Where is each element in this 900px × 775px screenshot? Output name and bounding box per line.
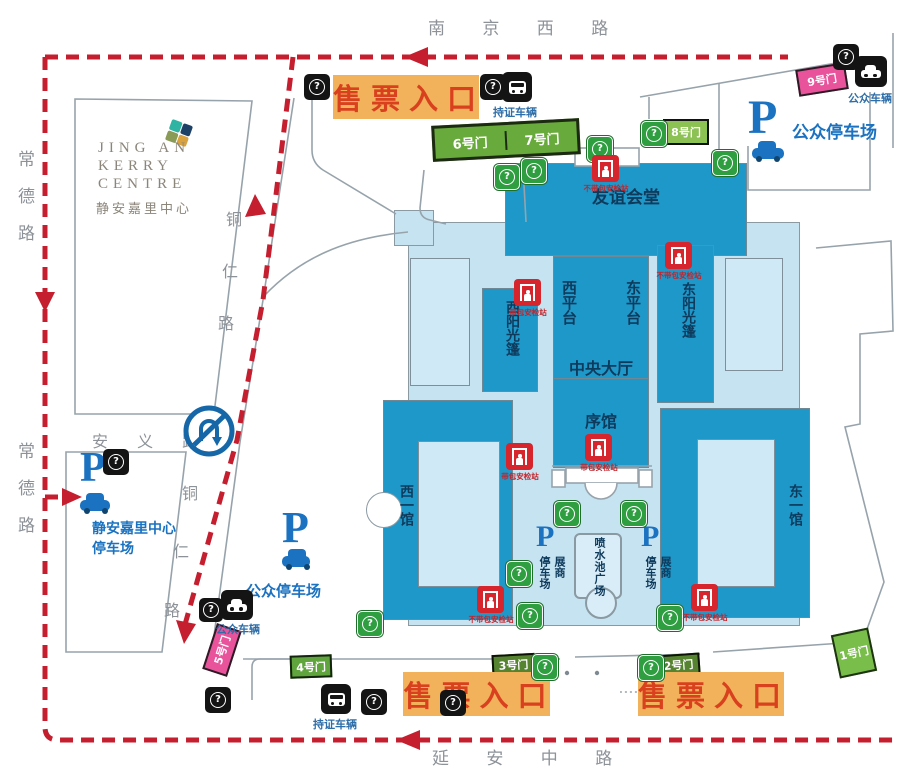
fountain-plaza-label: 喷水池广场 [591, 537, 607, 597]
route-tongren [184, 57, 293, 628]
security-check: 带包安检站 [506, 443, 533, 470]
parking-p: P [282, 502, 309, 553]
security-gate-icon [691, 584, 718, 611]
northwest-annex [394, 210, 434, 246]
parking-p: P [536, 520, 554, 554]
info-icon: ? [621, 501, 647, 527]
road-changde-upper: 常德路 [12, 150, 37, 261]
info-icon: ? [641, 121, 667, 147]
info-icon: ? [532, 654, 558, 680]
car-icon [855, 56, 887, 87]
help-icon: ? [205, 687, 231, 713]
gate-7-label: 7号门 [507, 127, 578, 150]
security-gate-icon [506, 443, 533, 470]
help-icon: ? [103, 449, 129, 475]
ticket-entrance-south-west: 售票入口 [403, 672, 550, 716]
arrow-down-left [35, 292, 55, 312]
west-courtyard [410, 258, 470, 386]
bus-icon [502, 72, 532, 102]
public-parking-label: 公众停车场 [246, 580, 321, 601]
info-icon: ? [357, 611, 383, 637]
public-vehicle-label: 公众车辆 [848, 90, 892, 106]
public-vehicle-label: 公众车辆 [216, 621, 260, 637]
bus-icon [321, 684, 351, 714]
west-hall-1-label: 西一馆 [396, 484, 416, 526]
venue-map: 友谊会堂 西平台 东平台 中央大厅 序馆 西阳光篷 东阳光篷 西一馆 东一馆 喷… [0, 0, 900, 775]
parking-p: P [748, 90, 777, 145]
help-icon: ? [361, 689, 387, 715]
gate-1: 1号门 [831, 628, 877, 679]
help-icon: ? [199, 598, 223, 622]
kerry-logo-line3: CENTRE [98, 176, 186, 193]
kerry-parking-label-line2: 停车场 [92, 538, 134, 558]
gate-6-label: 6号门 [435, 130, 508, 153]
arrow-down-tongren [176, 620, 196, 644]
car-icon [221, 590, 253, 620]
info-icon: ? [506, 561, 532, 587]
security-check: 不带包安检站 [665, 242, 692, 269]
permit-vehicle-label: 持证车辆 [493, 104, 537, 120]
road-nanjing-west: 南 京 西 路 [428, 14, 624, 39]
no-u-turn-sign [182, 404, 236, 462]
road-tongren-char: 仁 [173, 538, 189, 562]
road-tongren-char: 路 [218, 310, 234, 334]
east-building-outline [816, 241, 893, 657]
arrow-left-top [404, 47, 428, 67]
info-icon: ? [638, 655, 664, 681]
parking-car-icon [752, 140, 784, 159]
info-icon: ? [517, 603, 543, 629]
security-check: 带包安检站 [514, 279, 541, 306]
ticket-entrance-north: 售票入口 [333, 75, 479, 119]
gate-4: 4号门 [290, 654, 333, 678]
road-tongren-char: 铜 [182, 480, 198, 504]
kerry-logo-line2: KERRY [98, 158, 173, 175]
parking-car-icon [80, 492, 110, 511]
road-tongren-char: 仁 [222, 258, 238, 282]
security-check: 不带包安检站 [691, 584, 718, 611]
exhibitor-parking-label: 停车场 [642, 556, 658, 589]
arrow-into-parking [62, 488, 82, 506]
public-parking-label: 公众停车场 [792, 118, 877, 143]
arrow-left-bottom [396, 730, 420, 750]
east-courtyard [725, 258, 783, 371]
tongren-road-edge [211, 98, 294, 658]
east-hall-1-label: 东一馆 [785, 484, 805, 526]
security-check: 不带包安检站 [477, 586, 504, 613]
parking-car-icon [282, 548, 310, 567]
security-gate-icon [477, 586, 504, 613]
exhibitor-parking-label: 展商 [657, 556, 673, 578]
arrow-up-tongren [245, 194, 266, 217]
preface-hall-label: 序馆 [571, 410, 631, 430]
help-icon: ? [440, 690, 466, 716]
security-gate-icon [514, 279, 541, 306]
parking-p: P [80, 444, 106, 492]
road-changde-lower: 常德路 [12, 442, 37, 553]
permit-vehicle-label: 持证车辆 [313, 716, 357, 732]
road-tongren-char: 铜 [226, 206, 242, 230]
central-hall-label: 中央大厅 [556, 357, 646, 377]
security-gate-icon [665, 242, 692, 269]
kerry-parking-label-line1: 静安嘉里中心 [92, 518, 176, 538]
exhibitor-parking-label: 停车场 [536, 556, 552, 589]
security-check: 不带包安检站 [592, 155, 619, 182]
security-check: 带包安检站 [585, 434, 612, 461]
security-gate-icon [592, 155, 619, 182]
info-icon: ? [521, 158, 547, 184]
help-icon: ? [304, 74, 330, 100]
kerry-logo-line1: JING AN [98, 140, 190, 157]
security-gate-icon [585, 434, 612, 461]
west-terrace-label: 西平台 [559, 280, 580, 325]
exhibitor-parking-label: 展商 [551, 556, 567, 578]
road-yanan-middle: 延 安 中 路 [432, 744, 628, 769]
info-icon: ? [712, 150, 738, 176]
info-icon: ? [554, 501, 580, 527]
east-sunshade-label: 东阳光篷 [678, 282, 698, 338]
info-icon: ? [494, 164, 520, 190]
gate-8: 8号门 [663, 119, 709, 145]
east-terrace-label: 东平台 [623, 280, 644, 325]
road-tongren-char: 路 [164, 597, 180, 621]
gate-6-7: 6号门 7号门 [431, 118, 581, 162]
kerry-logo-cn: 静安嘉里中心 [96, 198, 192, 217]
